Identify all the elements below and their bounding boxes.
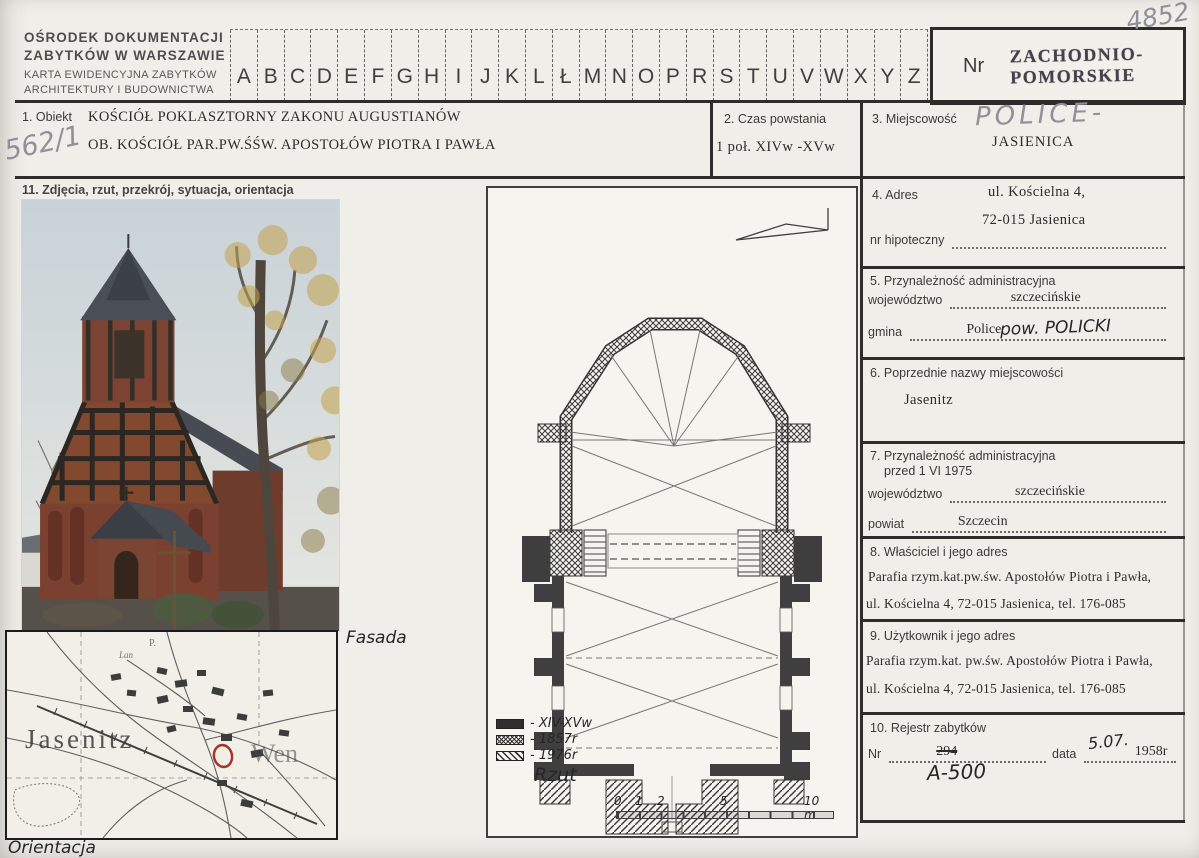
divider-line xyxy=(860,619,1185,622)
divider-line xyxy=(15,176,1185,179)
scale-tick: 2 xyxy=(657,794,665,808)
org-name-line2: ZABYTKÓW W WARSZAWIE xyxy=(24,48,225,63)
letter-cell: U xyxy=(766,30,793,101)
field3-label: 3. Miejscowość xyxy=(872,112,957,128)
voivodeship-1975-row: województwo szczecińskie xyxy=(868,484,1166,503)
commune-value: Police xyxy=(966,322,1001,338)
letter-cell: E xyxy=(337,30,364,101)
date-of-origin-value: 1 poł. XIVw -XVw xyxy=(716,139,835,156)
voivodeship-line: szczecińskie xyxy=(950,290,1166,309)
plan-caption: Rzut xyxy=(534,764,577,786)
object-name-line1: KOŚCIÓŁ POKLASZTORNY ZAKONU AUGUSTIANÓW xyxy=(88,109,461,126)
divider-line xyxy=(710,103,713,176)
register-number-row: Nr 294 A-500 xyxy=(868,744,1046,763)
letter-cell: S xyxy=(713,30,740,101)
former-name-value: Jasenitz xyxy=(904,392,953,409)
letter-cell: I xyxy=(445,30,472,101)
map-caption: Orientacja xyxy=(8,838,96,858)
alphabet-index-strip: A B C D E F G H I J K L Ł M N O P R S T … xyxy=(230,29,928,101)
register-date-handwritten: 5.07. xyxy=(1087,730,1129,753)
letter-cell: C xyxy=(284,30,311,101)
divider-line xyxy=(860,357,1185,360)
divider-line xyxy=(860,820,1185,823)
church-photo-illustration xyxy=(22,200,339,631)
mortgage-number-row: nr hipoteczny xyxy=(870,230,1166,249)
scale-bar-rule xyxy=(616,811,834,819)
card-type-line2: ARCHITEKTURY I BUDOWNICTWA xyxy=(24,84,214,96)
stair-left xyxy=(584,530,606,576)
divider-line xyxy=(860,712,1185,715)
window-openings xyxy=(552,608,792,710)
user-line1: Parafia rzym.kat. pw.św. Apostołów Piotr… xyxy=(866,653,1153,669)
letter-cell: D xyxy=(310,30,337,101)
letter-cell: L xyxy=(525,30,552,101)
photo-caption: Fasada xyxy=(346,628,407,648)
county-line: Szczecin xyxy=(912,514,1166,533)
mortgage-number-label: nr hipoteczny xyxy=(870,233,944,249)
floor-plan-panel: - XIV-XVw - 1857r - 1976r Rzut 0 1 2 5 1… xyxy=(486,186,858,838)
divider-line xyxy=(860,266,1185,269)
region-stamp: ZACHODNIO- POMORSKIE xyxy=(1010,44,1145,88)
address-line1: ul. Kościelna 4, xyxy=(988,184,1085,201)
letter-cell: J xyxy=(471,30,498,101)
locality-value: JASIENICA xyxy=(992,134,1074,151)
field2-label: 2. Czas powstania xyxy=(724,112,826,128)
field4-label: 4. Adres xyxy=(872,188,918,204)
county-row: powiat Szczecin xyxy=(868,514,1166,533)
region-stamp-line1: ZACHODNIO- xyxy=(1010,44,1144,67)
scale-tick: 1 xyxy=(635,794,643,808)
register-nr-line: 294 A-500 xyxy=(889,744,1046,763)
register-nr-struck: 294 xyxy=(936,744,957,760)
map-illustration: Jasenitz Wen P. Lan xyxy=(7,632,336,838)
letter-cell: Y xyxy=(874,30,901,101)
letter-cell: Z xyxy=(900,30,927,101)
legend-swatch-solid xyxy=(496,719,524,729)
region-stamp-line2: POMORSKIE xyxy=(1010,65,1144,88)
letter-cell: G xyxy=(391,30,418,101)
register-date-label: data xyxy=(1052,747,1076,763)
legend-swatch-diagonal xyxy=(496,751,524,761)
voivodeship-1975-label: województwo xyxy=(868,487,942,503)
orientation-map: Jasenitz Wen P. Lan xyxy=(5,630,338,840)
letter-cell: W xyxy=(820,30,847,101)
legend-label: - 1857r xyxy=(530,732,577,747)
field11-label: 11. Zdjęcia, rzut, przekrój, sytuacja, o… xyxy=(22,183,294,199)
letter-cell: R xyxy=(686,30,713,101)
register-date-value: 1958r xyxy=(1135,744,1168,760)
heritage-record-card: OŚRODEK DOKUMENTACJI ZABYTKÓW W WARSZAWI… xyxy=(0,0,1199,858)
letter-cell: B xyxy=(257,30,284,101)
scale-tick: 5 xyxy=(720,794,728,808)
locality-handwritten: POLICE- xyxy=(975,98,1106,133)
legend-swatch-crosshatch xyxy=(496,735,524,745)
field7-label-line2: przed 1 VI 1975 xyxy=(884,464,972,480)
field9-label: 9. Użytkownik i jego adres xyxy=(870,629,1015,645)
letter-cell: K xyxy=(498,30,525,101)
owner-line1: Parafia rzym.kat.pw.św. Apostołów Piotra… xyxy=(868,569,1151,585)
field5-label: 5. Przynależność administracyjna xyxy=(870,274,1056,290)
letter-cell: F xyxy=(364,30,391,101)
divider-line xyxy=(860,441,1185,444)
map-partial-label: Wen xyxy=(251,739,298,768)
handwritten-ref-number: 562/1 xyxy=(2,120,85,167)
field7-label-line1: 7. Przynależność administracyjna xyxy=(870,449,1056,465)
map-micro-label: Lan xyxy=(118,650,134,660)
scale-bar: 0 1 2 5 10 m xyxy=(616,794,834,822)
card-number-box: Nr ZACHODNIO- POMORSKIE xyxy=(930,27,1186,105)
voivodeship-1975-line: szczecińskie xyxy=(950,484,1166,503)
field10-label: 10. Rejestr zabytków xyxy=(870,721,986,737)
card-type-line1: KARTA EWIDENCYJNA ZABYTKÓW xyxy=(24,69,217,81)
register-nr-handwritten: A-500 xyxy=(926,759,986,785)
register-date-row: data 5.07. 1958r xyxy=(1052,744,1176,763)
user-line2: ul. Kościelna 4, 72-015 Jasienica, tel. … xyxy=(866,681,1126,697)
register-nr-label: Nr xyxy=(868,747,881,763)
letter-cell: T xyxy=(739,30,766,101)
letter-cell: A xyxy=(230,30,257,101)
legend-item: - XIV-XVw xyxy=(496,716,592,731)
scale-tick: 0 xyxy=(614,794,622,808)
letter-cell: V xyxy=(793,30,820,101)
legend-label: - 1976r xyxy=(530,748,577,763)
field8-label: 8. Właściciel i jego adres xyxy=(870,545,1008,561)
legend-item: - 1976r xyxy=(496,748,577,763)
voivodeship-row: województwo szczecińskie xyxy=(868,290,1166,309)
mortgage-number-line xyxy=(952,230,1166,249)
letter-cell: O xyxy=(632,30,659,101)
county-label: powiat xyxy=(868,517,904,533)
letter-cell: X xyxy=(847,30,874,101)
letter-cell: H xyxy=(418,30,445,101)
voivodeship-1975-value: szczecińskie xyxy=(1015,484,1085,500)
church-facade-photo xyxy=(22,200,339,631)
voivodeship-label: województwo xyxy=(868,293,942,309)
letter-cell: M xyxy=(579,30,606,101)
county-value: Szczecin xyxy=(958,514,1008,530)
org-name-line1: OŚRODEK DOKUMENTACJI xyxy=(24,30,224,45)
letter-cell: P xyxy=(659,30,686,101)
legend-label: - XIV-XVw xyxy=(530,716,592,731)
object-name-line2: OB. KOŚCIÓŁ PAR.PW.ŚŚW. APOSTOŁÓW PIOTRA… xyxy=(88,137,496,154)
register-date-line: 5.07. 1958r xyxy=(1084,744,1176,763)
legend-item: - 1857r xyxy=(496,732,577,747)
letter-cell: N xyxy=(605,30,632,101)
north-arrow-icon xyxy=(736,208,828,240)
letter-cell: Ł xyxy=(552,30,579,101)
field6-label: 6. Poprzednie nazwy miejscowości xyxy=(870,366,1063,382)
map-place-label: Jasenitz xyxy=(25,724,134,754)
address-line2: 72-015 Jasienica xyxy=(982,212,1085,229)
divider-line xyxy=(860,536,1185,539)
owner-line2: ul. Kościelna 4, 72-015 Jasienica, tel. … xyxy=(866,596,1126,612)
stair-right xyxy=(738,530,760,576)
map-micro-label: P. xyxy=(149,638,156,649)
commune-label: gmina xyxy=(868,325,902,341)
nr-label: Nr xyxy=(963,55,984,78)
voivodeship-value: szczecińskie xyxy=(1011,290,1081,306)
commune-handwritten-note: pow. POLICKI xyxy=(1000,316,1112,340)
